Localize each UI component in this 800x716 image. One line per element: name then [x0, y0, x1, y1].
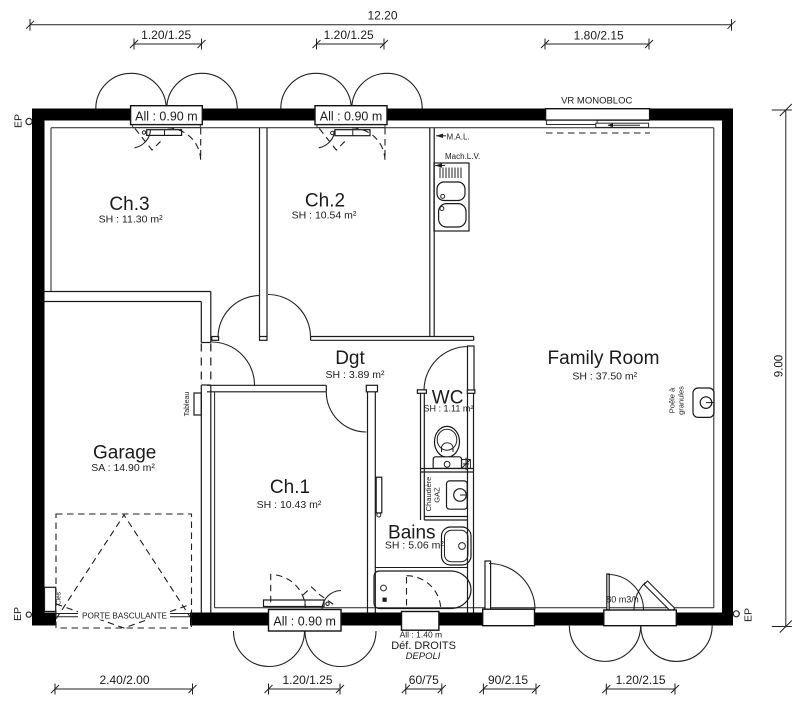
svg-text:All : 0.90 m: All : 0.90 m — [320, 109, 383, 123]
svg-text:All : 0.90 m: All : 0.90 m — [135, 109, 198, 123]
svg-text:Mach.L.V.: Mach.L.V. — [445, 152, 480, 161]
svg-text:All : 1.40 m: All : 1.40 m — [400, 630, 443, 640]
svg-text:Tableau: Tableau — [184, 392, 191, 417]
svg-text:Ch.1: Ch.1 — [270, 477, 310, 498]
svg-text:EP: EP — [12, 114, 24, 128]
svg-text:1.20/1.25: 1.20/1.25 — [282, 673, 332, 687]
svg-text:EP: EP — [12, 607, 24, 621]
svg-text:DEPOLI: DEPOLI — [406, 651, 441, 662]
svg-text:SH : 5.06 m²: SH : 5.06 m² — [385, 540, 444, 552]
svg-text:80 m3/h: 80 m3/h — [606, 595, 639, 605]
svg-text:90/2.15: 90/2.15 — [488, 673, 528, 687]
svg-text:Clés: Clés — [56, 591, 63, 605]
svg-text:SH : 37.50 m²: SH : 37.50 m² — [572, 371, 637, 383]
svg-text:SH : 10.43 m²: SH : 10.43 m² — [257, 499, 322, 511]
svg-text:VR MONOBLOC: VR MONOBLOC — [561, 96, 632, 107]
svg-text:SH : 11.30 m²: SH : 11.30 m² — [99, 214, 163, 226]
svg-text:1.20/2.15: 1.20/2.15 — [616, 673, 666, 687]
svg-text:1.20/1.25: 1.20/1.25 — [141, 28, 191, 42]
svg-text:SA : 14.90 m²: SA : 14.90 m² — [91, 462, 155, 474]
svg-text:12.20: 12.20 — [367, 9, 397, 23]
svg-text:2.40/2.00: 2.40/2.00 — [99, 673, 149, 687]
svg-text:Ch.2: Ch.2 — [305, 191, 345, 212]
svg-text:Family Room: Family Room — [548, 348, 660, 369]
svg-text:Poêle à: Poêle à — [668, 387, 677, 413]
svg-text:Garage: Garage — [93, 443, 156, 464]
svg-text:1.20/1.25: 1.20/1.25 — [324, 28, 374, 42]
svg-text:GAZ: GAZ — [433, 487, 442, 503]
svg-text:M.A.L.: M.A.L. — [447, 133, 470, 142]
svg-text:SH : 10.54 m²: SH : 10.54 m² — [292, 210, 357, 222]
svg-text:granules: granules — [677, 386, 686, 415]
svg-text:All : 0.90 m: All : 0.90 m — [273, 614, 336, 628]
svg-text:EP: EP — [743, 608, 755, 622]
svg-text:60/75: 60/75 — [409, 673, 439, 687]
svg-text:Ch.3: Ch.3 — [109, 194, 149, 215]
svg-text:SH : 3.89 m²: SH : 3.89 m² — [326, 369, 385, 381]
svg-text:SH : 1.11 m²: SH : 1.11 m² — [423, 404, 473, 414]
svg-text:1.80/2.15: 1.80/2.15 — [574, 29, 624, 43]
svg-text:PORTE BASCULANTE: PORTE BASCULANTE — [82, 612, 167, 621]
svg-text:9.00: 9.00 — [774, 355, 786, 377]
svg-text:Dgt: Dgt — [335, 348, 365, 369]
